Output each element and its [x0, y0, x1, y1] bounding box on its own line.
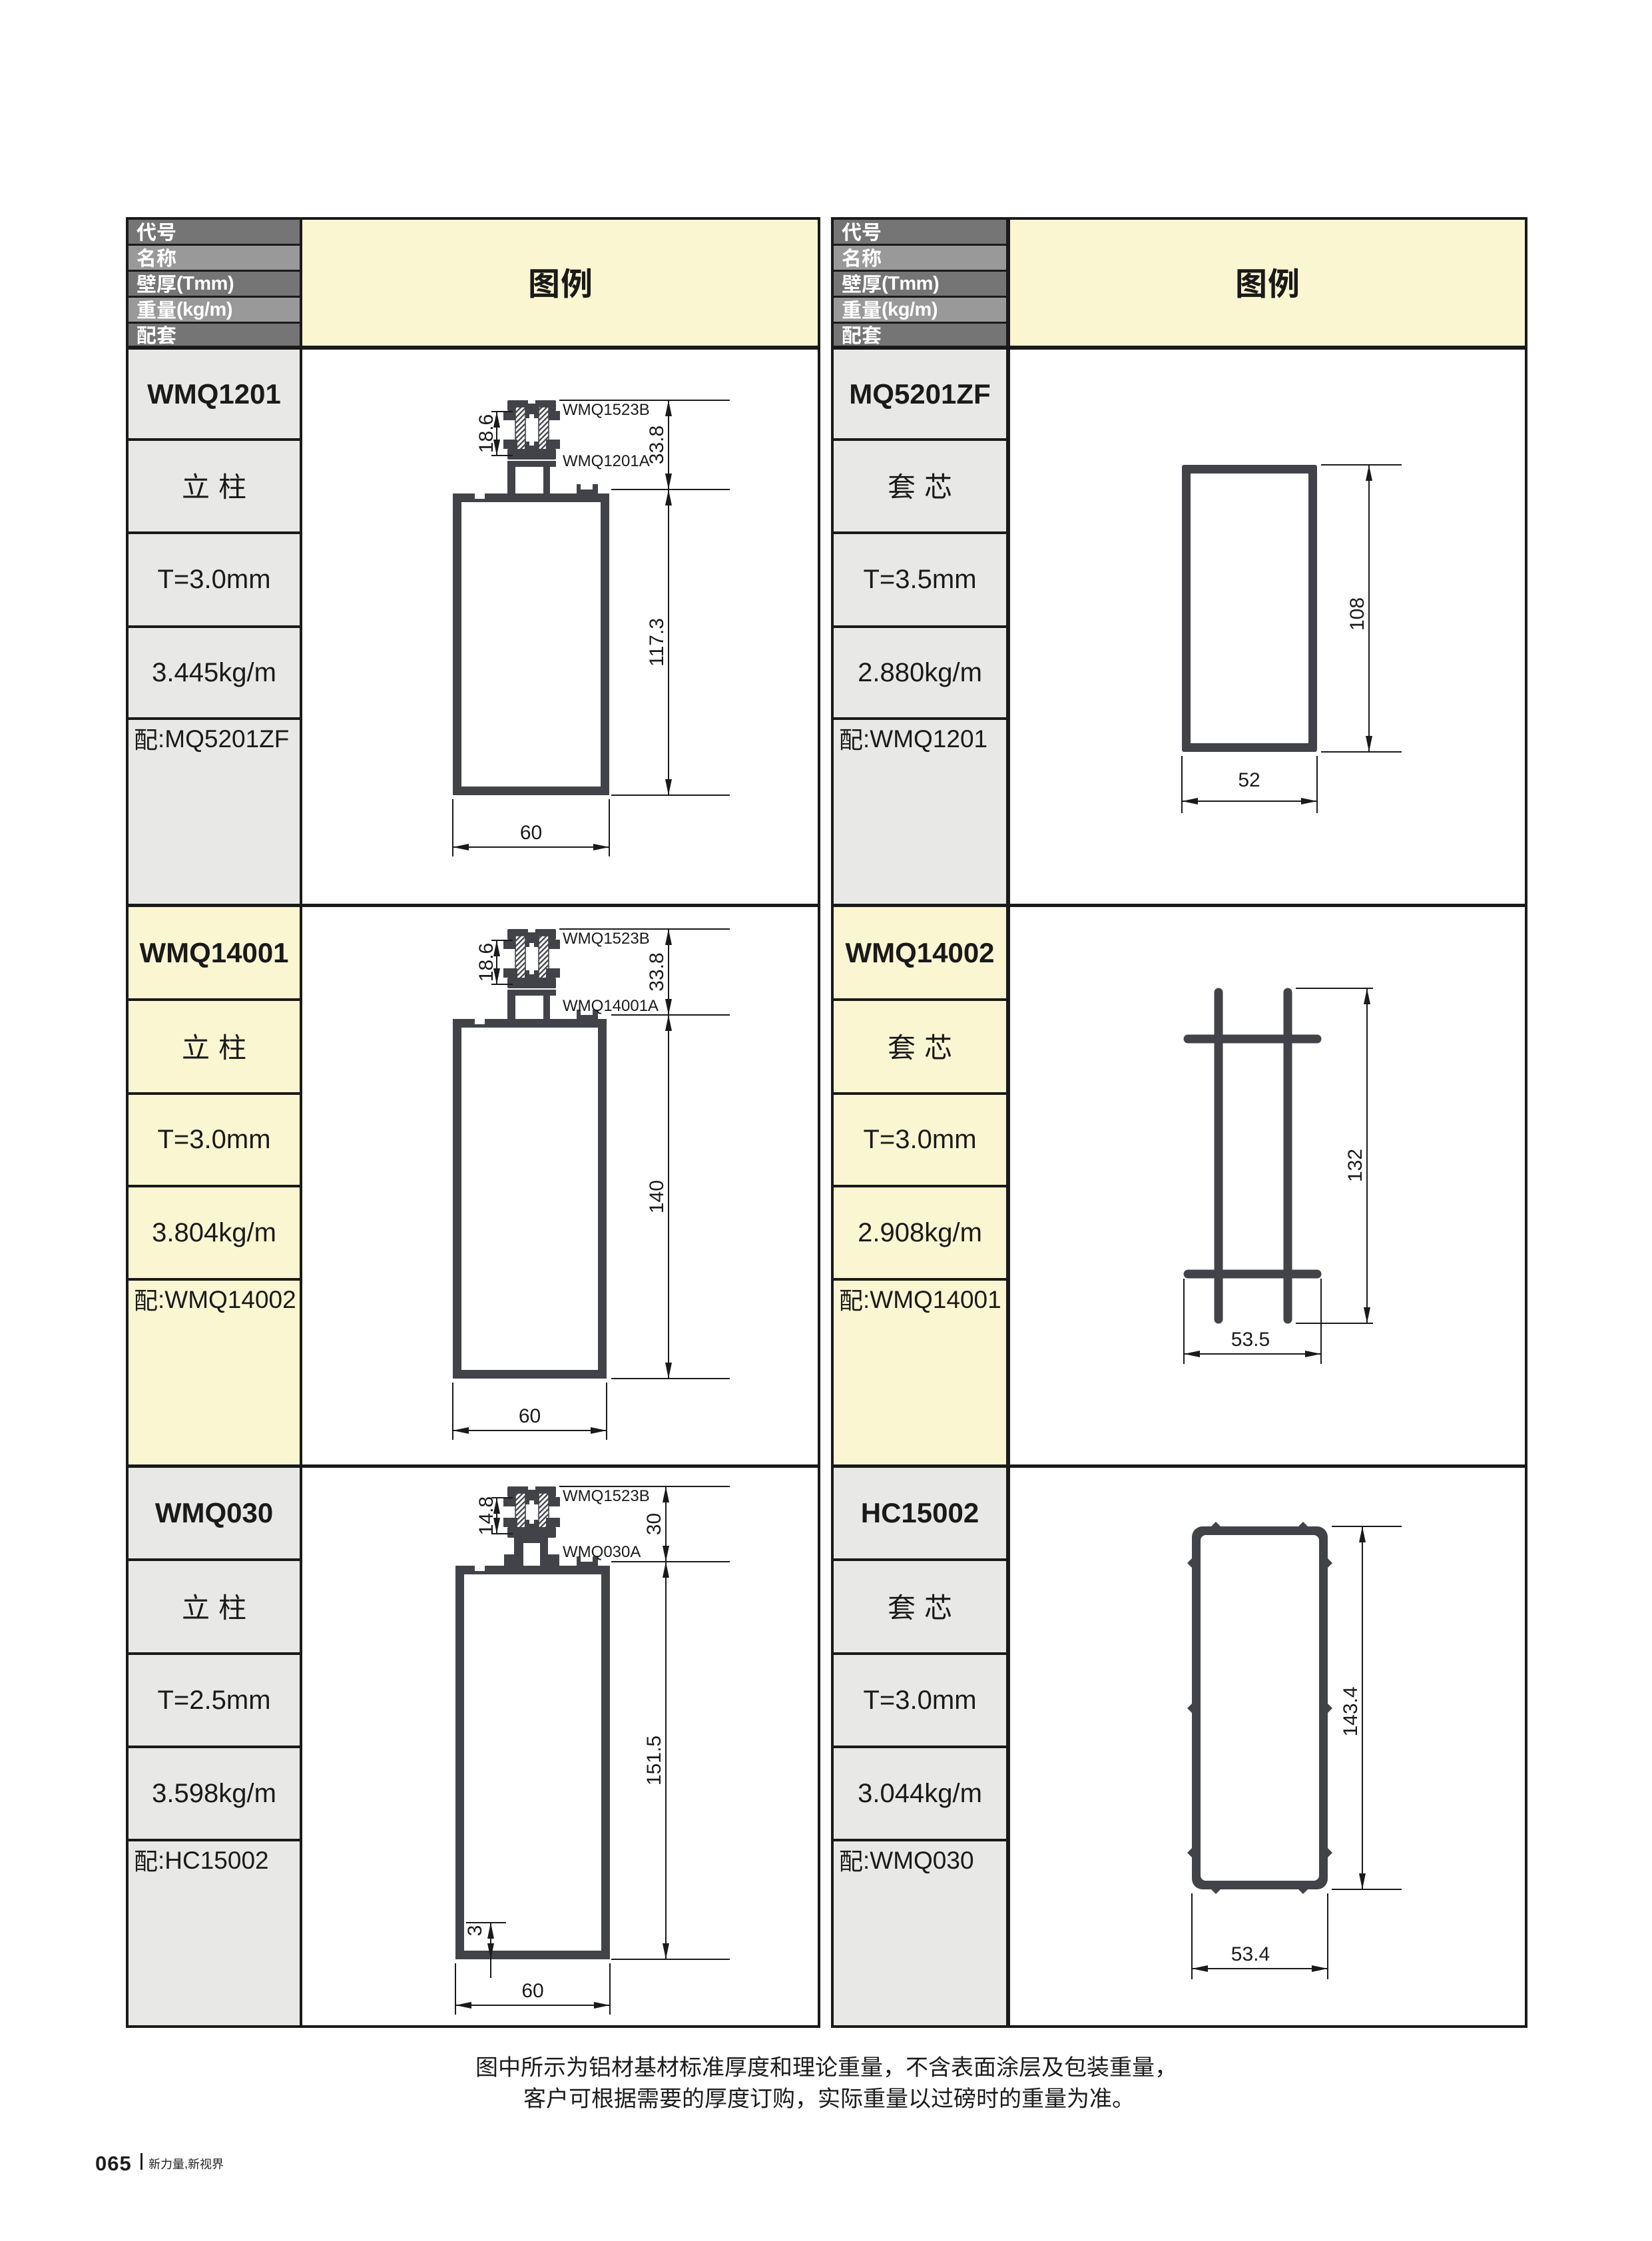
svg-text:60: 60 [519, 1405, 541, 1427]
svg-text:18.6: 18.6 [475, 943, 497, 982]
svg-text:60: 60 [520, 822, 542, 844]
svg-text:52: 52 [1238, 769, 1260, 791]
svg-text:WMQ14001A: WMQ14001A [563, 997, 659, 1015]
svg-text:3: 3 [464, 1925, 486, 1937]
svg-text:132: 132 [1344, 1149, 1366, 1182]
svg-text:53.5: 53.5 [1231, 1329, 1270, 1351]
svg-text:30: 30 [643, 1513, 665, 1535]
svg-text:60: 60 [521, 1980, 543, 2002]
svg-text:14.8: 14.8 [475, 1496, 497, 1535]
svg-text:WMQ030A: WMQ030A [563, 1543, 641, 1561]
svg-text:WMQ1523B: WMQ1523B [563, 1487, 650, 1505]
svg-text:33.8: 33.8 [646, 952, 668, 991]
svg-text:53.4: 53.4 [1231, 1943, 1270, 1965]
svg-text:151.5: 151.5 [643, 1736, 665, 1785]
svg-text:140: 140 [646, 1180, 668, 1213]
svg-text:WMQ1523B: WMQ1523B [563, 401, 650, 419]
svg-text:WMQ1201A: WMQ1201A [563, 452, 650, 470]
svg-text:18.6: 18.6 [475, 414, 497, 453]
svg-text:117.3: 117.3 [646, 618, 668, 667]
svg-text:143.4: 143.4 [1340, 1686, 1362, 1736]
svg-text:108: 108 [1346, 597, 1368, 631]
svg-text:WMQ1523B: WMQ1523B [563, 930, 650, 948]
